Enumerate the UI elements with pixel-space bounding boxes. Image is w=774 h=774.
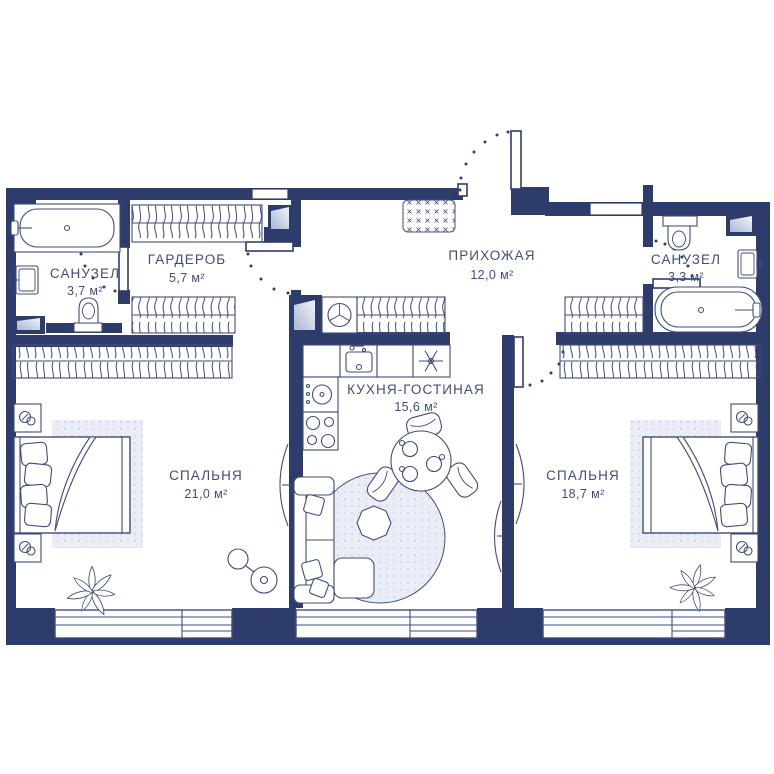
pillow-icon xyxy=(720,463,748,488)
closet-rail-icon xyxy=(357,297,445,333)
room-label-sanuzel-1: САНУЗЕЛ xyxy=(50,266,120,281)
room-area-sanuzel-2: 3,3 м² xyxy=(668,270,704,284)
room-label-prihozhaya: ПРИХОЖАЯ xyxy=(448,248,535,263)
room-label-sanuzel-2: САНУЗЕЛ xyxy=(651,252,721,267)
bathtub-icon xyxy=(655,287,762,332)
closet-rail-icon xyxy=(560,345,760,378)
room-area-garderob: 5,7 м² xyxy=(169,271,205,285)
plant-icon xyxy=(665,559,721,616)
window-bedroom-right xyxy=(543,610,725,638)
windows xyxy=(55,610,725,638)
pillow-icon xyxy=(724,442,752,466)
nightstand-icon xyxy=(14,404,41,432)
pillow-icon xyxy=(24,503,52,527)
bed-icon xyxy=(14,437,130,533)
plant-icon xyxy=(66,567,115,617)
room-area-spalnya-2: 18,7 м² xyxy=(561,487,604,501)
washing-machine-icon xyxy=(322,297,357,333)
doormat-icon xyxy=(403,200,455,232)
room-label-spalnya-1: СПАЛЬНЯ xyxy=(169,468,243,483)
shaft-icon xyxy=(294,300,315,330)
closet-rail-icon xyxy=(132,205,262,242)
room-area-spalnya-1: 21,0 м² xyxy=(184,487,227,501)
bed-icon xyxy=(643,437,758,533)
entrance-door xyxy=(458,131,521,197)
oven-icon xyxy=(303,377,338,412)
closet-rail-icon xyxy=(132,297,235,333)
closet-rail-icon xyxy=(13,345,232,378)
coffee-table-icon xyxy=(357,506,391,540)
wardrobe-door xyxy=(246,242,293,295)
window-kitchen xyxy=(296,610,477,638)
wardrobe-room-furniture xyxy=(132,205,262,333)
nightstand-icon xyxy=(14,534,41,562)
nightstand-icon xyxy=(731,534,758,562)
window-slot-icon xyxy=(252,189,288,199)
pillow-icon xyxy=(303,494,325,516)
pillow-icon xyxy=(301,559,323,581)
toilet-icon xyxy=(74,298,102,332)
cooktop-icon xyxy=(303,412,338,450)
window-bedroom-left xyxy=(55,610,232,638)
room-area-sanuzel-1: 3,7 м² xyxy=(67,284,103,298)
room-area-prihozhaya: 12,0 м² xyxy=(470,268,513,282)
floor-plan: САНУЗЕЛ 3,7 м² ГАРДЕРОБ 5,7 м² ПРИХОЖАЯ … xyxy=(0,0,774,774)
room-label-garderob: ГАРДЕРОБ xyxy=(148,252,227,267)
room-area-kuhnya: 15,6 м² xyxy=(394,400,437,414)
bathtub-icon xyxy=(11,204,120,252)
room-label-kuhnya: КУХНЯ-ГОСТИНАЯ xyxy=(347,382,485,397)
hallway-closet-rail-icon xyxy=(565,297,643,333)
pillow-icon xyxy=(20,442,48,466)
pillow-icon xyxy=(720,503,748,527)
room-label-spalnya-2: СПАЛЬНЯ xyxy=(546,468,620,483)
bedroom-left-furniture xyxy=(13,345,291,616)
tv-icon xyxy=(513,444,524,524)
floor-lamp-icon xyxy=(228,549,277,593)
nightstand-icon xyxy=(731,404,758,432)
kitchen-counter xyxy=(303,345,450,377)
toilet-icon xyxy=(663,216,697,250)
pillow-icon xyxy=(24,463,52,488)
window-slot-icon xyxy=(590,203,642,215)
dining-table-icon xyxy=(364,411,481,504)
